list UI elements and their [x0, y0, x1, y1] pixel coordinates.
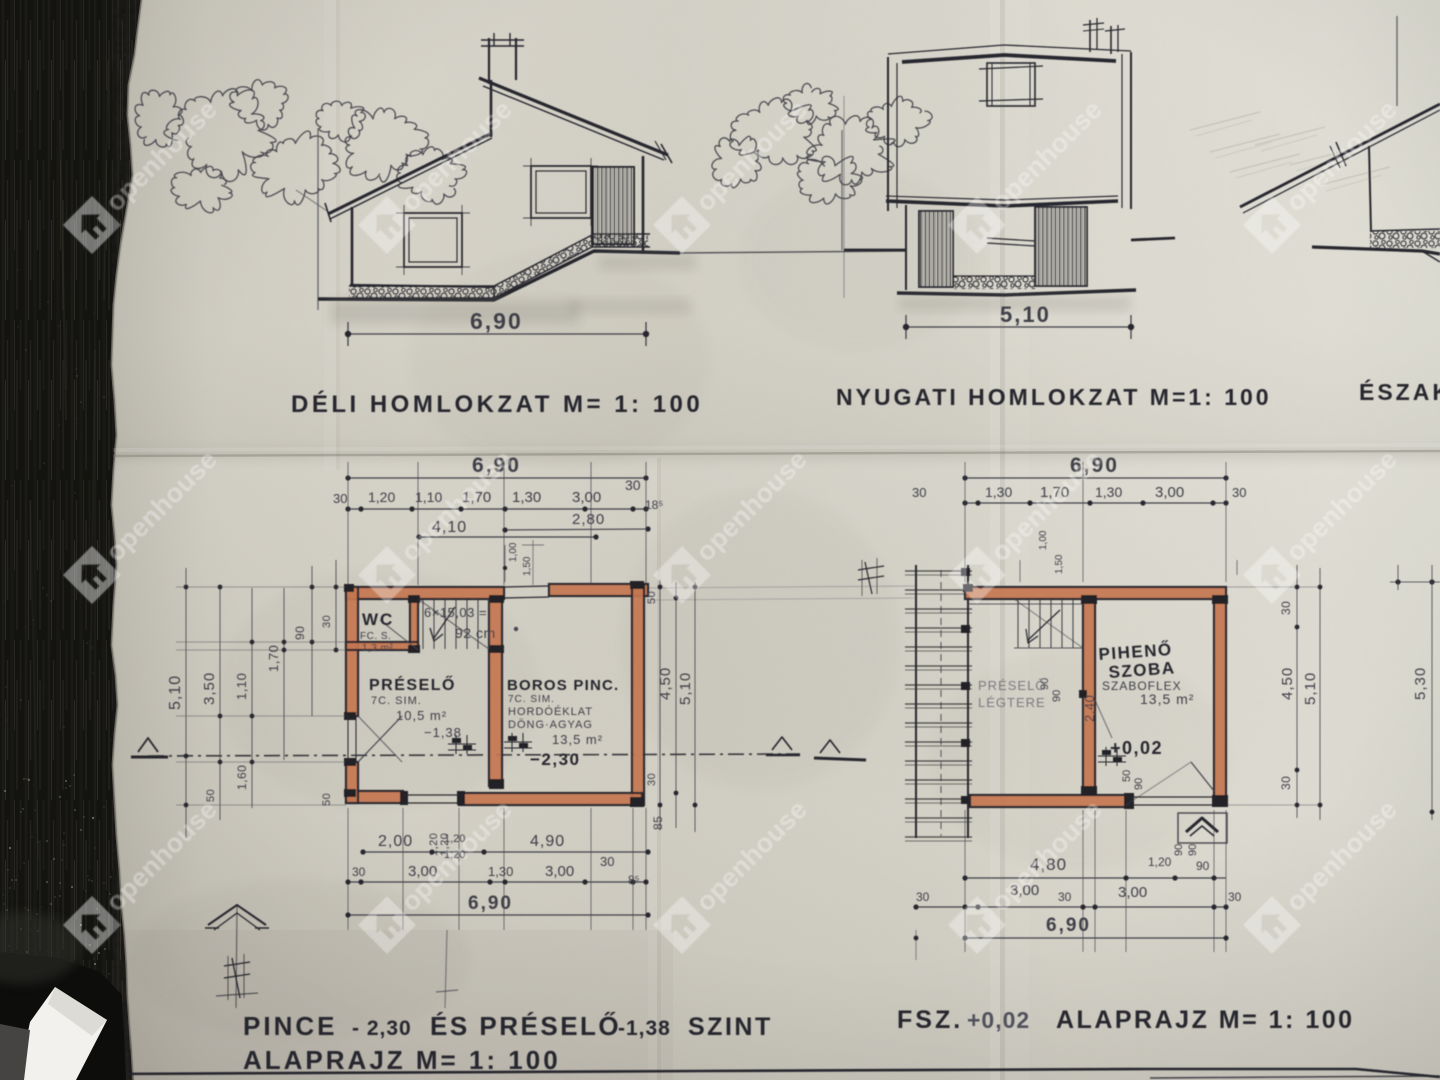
svg-text:PRÉSELŐ: PRÉSELŐ [978, 678, 1046, 693]
svg-text:NYUGATI HOMLOKZAT M=1: 100: NYUGATI HOMLOKZAT M=1: 100 [836, 384, 1272, 410]
svg-text:3,00: 3,00 [1118, 884, 1147, 901]
svg-text:5,10: 5,10 [167, 675, 184, 710]
svg-text:90: 90 [1051, 690, 1063, 702]
svg-text:2,40: 2,40 [1082, 695, 1097, 722]
svg-text:1,20: 1,20 [368, 489, 395, 505]
svg-text:−2,30: −2,30 [530, 750, 581, 769]
svg-text:1,60: 1,60 [235, 765, 249, 790]
svg-text:30: 30 [646, 773, 658, 786]
svg-text:1,20: 1,20 [1148, 855, 1172, 869]
svg-text:LÉGTERE: LÉGTERE [978, 695, 1046, 710]
svg-text:30: 30 [600, 854, 614, 869]
svg-text:4,50: 4,50 [1279, 667, 1296, 700]
svg-text:4,90: 4,90 [530, 833, 565, 850]
svg-text:30: 30 [352, 865, 366, 879]
svg-text:3,00: 3,00 [545, 863, 574, 880]
svg-text:WC: WC [362, 610, 394, 629]
svg-text:1,10: 1,10 [234, 673, 249, 700]
svg-text:1,50: 1,50 [522, 556, 533, 576]
svg-text:30: 30 [1232, 485, 1246, 500]
svg-text:ALAPRAJZ M= 1: 100: ALAPRAJZ M= 1: 100 [243, 1045, 561, 1075]
svg-text:5,10: 5,10 [1302, 672, 1319, 705]
svg-text:-1,38: -1,38 [618, 1017, 671, 1040]
svg-text:PINCE: PINCE [243, 1011, 337, 1041]
svg-text:1,00: 1,00 [508, 542, 519, 562]
svg-text:30: 30 [321, 615, 333, 628]
svg-text:13,5 m²: 13,5 m² [552, 732, 603, 747]
svg-text:90: 90 [1173, 844, 1185, 856]
svg-text:7C. SIM.: 7C. SIM. [371, 695, 422, 707]
svg-text:30: 30 [1279, 601, 1293, 615]
svg-text:DÖNG·AGYAG: DÖNG·AGYAG [508, 719, 593, 731]
svg-text:50: 50 [646, 591, 658, 604]
svg-text:13,5 m²: 13,5 m² [1140, 691, 1194, 707]
svg-text:1,30: 1,30 [985, 484, 1012, 500]
svg-text:90: 90 [1196, 859, 1210, 873]
svg-text:30: 30 [916, 890, 930, 904]
svg-text:ÉS PRÉSELŐ: ÉS PRÉSELŐ [430, 1011, 621, 1041]
svg-text:30: 30 [1228, 890, 1242, 904]
svg-text:18⁵: 18⁵ [645, 498, 663, 512]
svg-text:2,00: 2,00 [378, 833, 413, 850]
svg-text:8⁵: 8⁵ [628, 873, 640, 887]
svg-text:50: 50 [1121, 770, 1133, 782]
svg-text:6,90: 6,90 [468, 893, 513, 914]
svg-text:6×15,03 =: 6×15,03 = [424, 605, 487, 620]
svg-text:1,70: 1,70 [266, 645, 281, 672]
svg-text:3,00: 3,00 [572, 489, 601, 506]
svg-text:30: 30 [333, 491, 347, 506]
svg-text:5,10: 5,10 [677, 672, 694, 705]
svg-text:6,90: 6,90 [470, 308, 523, 334]
svg-text:1,30: 1,30 [1095, 484, 1122, 500]
svg-text:ÉSZAKI: ÉSZAKI [1359, 378, 1440, 405]
svg-text:7C. SIM.: 7C. SIM. [508, 694, 555, 705]
svg-text:90: 90 [1187, 844, 1199, 856]
svg-text:DÉLI HOMLOKZAT M= 1: 100: DÉLI HOMLOKZAT M= 1: 100 [291, 390, 703, 418]
svg-text:+0,02: +0,02 [967, 1007, 1030, 1033]
svg-text:PRÉSELŐ: PRÉSELŐ [369, 675, 456, 694]
svg-text:1,30: 1,30 [512, 489, 541, 506]
svg-text:10,5 m²: 10,5 m² [396, 708, 447, 723]
svg-text:ALAPRAJZ M= 1: 100: ALAPRAJZ M= 1: 100 [1056, 1006, 1355, 1034]
svg-text:90: 90 [1133, 778, 1145, 790]
svg-text:+0,02: +0,02 [1110, 738, 1163, 758]
svg-text:FC. S.: FC. S. [360, 631, 391, 642]
svg-text:92 cm: 92 cm [455, 625, 496, 641]
svg-text:- 2,30: - 2,30 [352, 1017, 412, 1040]
svg-text:1,3 m²: 1,3 m² [362, 643, 394, 654]
svg-text:5,30: 5,30 [1412, 667, 1429, 700]
svg-text:85: 85 [651, 816, 665, 830]
svg-text:50: 50 [321, 793, 333, 806]
svg-text:3,50: 3,50 [201, 672, 218, 705]
svg-text:30: 30 [625, 477, 641, 493]
svg-text:30: 30 [912, 485, 926, 500]
svg-text:SZINT: SZINT [688, 1013, 773, 1041]
svg-text:5,10: 5,10 [1000, 302, 1051, 327]
svg-text:1,30: 1,30 [488, 864, 513, 879]
svg-text:HORDÓÉKLAT: HORDÓÉKLAT [508, 705, 593, 718]
svg-text:1,50: 1,50 [1054, 554, 1065, 574]
svg-text:3,00: 3,00 [1155, 484, 1184, 501]
svg-text:30: 30 [1058, 890, 1072, 904]
svg-text:6,90: 6,90 [1046, 915, 1091, 936]
svg-text:BOROS PINC.: BOROS PINC. [507, 677, 619, 694]
svg-text:2,80: 2,80 [572, 511, 605, 528]
svg-text:30: 30 [1279, 776, 1293, 790]
svg-text:FSZ.: FSZ. [897, 1006, 963, 1034]
svg-text:90: 90 [293, 626, 307, 640]
svg-text:4,50: 4,50 [657, 667, 674, 700]
